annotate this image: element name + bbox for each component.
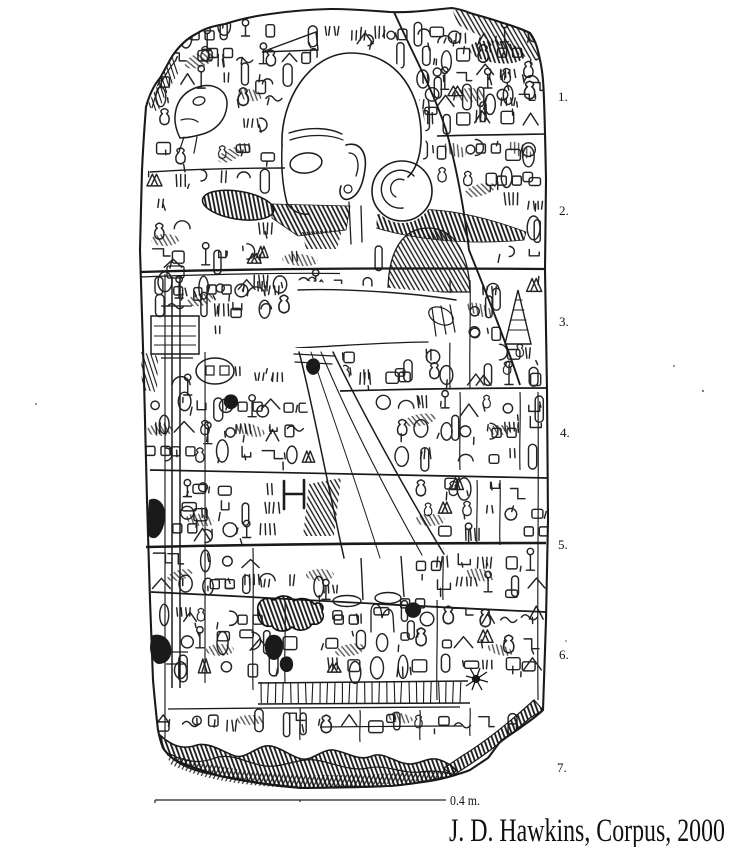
svg-text:0.4 m.: 0.4 m.	[450, 793, 480, 808]
svg-text:J. D. Hawkins, Corpus, 2000: J. D. Hawkins, Corpus, 2000	[449, 813, 725, 847]
svg-text:5.: 5.	[558, 537, 568, 552]
svg-text:7.: 7.	[557, 760, 567, 775]
svg-text:2.: 2.	[559, 203, 569, 218]
svg-text:4.: 4.	[560, 425, 570, 440]
svg-text:6.: 6.	[559, 647, 569, 662]
svg-text:3.: 3.	[559, 314, 569, 329]
svg-text:1.: 1.	[558, 89, 568, 104]
